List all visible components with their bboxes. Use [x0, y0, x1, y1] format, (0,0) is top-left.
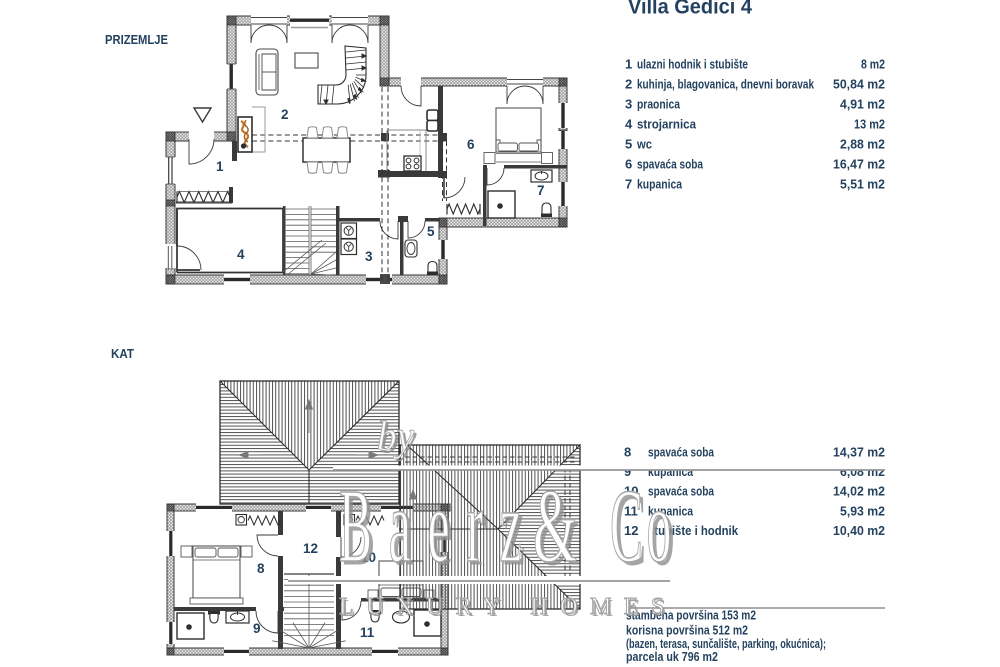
svg-text:kuhinja, blagovanica, dnevni b: kuhinja, blagovanica, dnevni boravak [637, 77, 815, 92]
svg-text:Co: Co [610, 468, 675, 584]
svg-text:4: 4 [625, 117, 633, 132]
svg-text:4,91 m2: 4,91 m2 [840, 97, 885, 112]
svg-text:LUXURY HOMES: LUXURY HOMES [339, 594, 677, 620]
svg-text:11: 11 [360, 625, 375, 640]
svg-text:2: 2 [625, 77, 632, 92]
svg-text:5,93 m2: 5,93 m2 [840, 503, 885, 518]
svg-text:5: 5 [625, 137, 632, 152]
svg-text:7: 7 [625, 177, 632, 192]
svg-text:8: 8 [624, 444, 631, 459]
svg-text:PRIZEMLJE: PRIZEMLJE [105, 33, 168, 47]
svg-text:9: 9 [253, 621, 261, 636]
svg-text:&: & [533, 469, 577, 585]
svg-text:spavaća soba: spavaća soba [637, 157, 704, 172]
svg-text:5: 5 [427, 224, 435, 239]
svg-text:7: 7 [537, 183, 545, 198]
svg-text:strojarnica: strojarnica [637, 117, 697, 132]
svg-text:by: by [377, 414, 414, 460]
svg-text:KAT: KAT [111, 347, 134, 361]
svg-text:12: 12 [303, 541, 318, 556]
svg-text:8: 8 [257, 561, 265, 576]
svg-text:1: 1 [625, 57, 632, 72]
svg-text:2,88 m2: 2,88 m2 [840, 137, 885, 152]
svg-text:korisna površina 512 m2: korisna površina 512 m2 [626, 624, 748, 638]
svg-text:3: 3 [365, 249, 373, 264]
svg-text:50,84 m2: 50,84 m2 [833, 77, 885, 92]
svg-text:3: 3 [625, 97, 632, 112]
svg-text:13 m2: 13 m2 [854, 117, 885, 132]
svg-text:Baerz: Baerz [339, 468, 539, 584]
svg-text:16,47 m2: 16,47 m2 [833, 157, 885, 172]
svg-text:Villa Gedici 4: Villa Gedici 4 [628, 0, 752, 19]
svg-text:4: 4 [237, 247, 245, 262]
svg-text:14,02 m2: 14,02 m2 [833, 484, 885, 499]
svg-text:14,37 m2: 14,37 m2 [833, 444, 885, 459]
svg-text:1: 1 [216, 159, 224, 174]
svg-text:6: 6 [467, 137, 475, 152]
svg-text:parcela uk 796 m2: parcela uk 796 m2 [626, 650, 718, 664]
svg-text:8 m2: 8 m2 [861, 57, 885, 72]
svg-text:spavaća soba: spavaća soba [648, 444, 715, 459]
svg-text:2: 2 [281, 107, 289, 122]
svg-text:5,51 m2: 5,51 m2 [840, 177, 885, 192]
svg-text:6: 6 [625, 157, 632, 172]
svg-text:kupanica: kupanica [637, 177, 683, 192]
svg-text:(bazen, terasa, sunčalište, pa: (bazen, terasa, sunčalište, parking, oku… [626, 637, 826, 651]
svg-text:praonica: praonica [637, 97, 681, 112]
svg-text:wc: wc [636, 137, 652, 152]
svg-text:ulazni hodnik i stubište: ulazni hodnik i stubište [637, 57, 748, 72]
svg-text:10,40 m2: 10,40 m2 [833, 523, 885, 538]
